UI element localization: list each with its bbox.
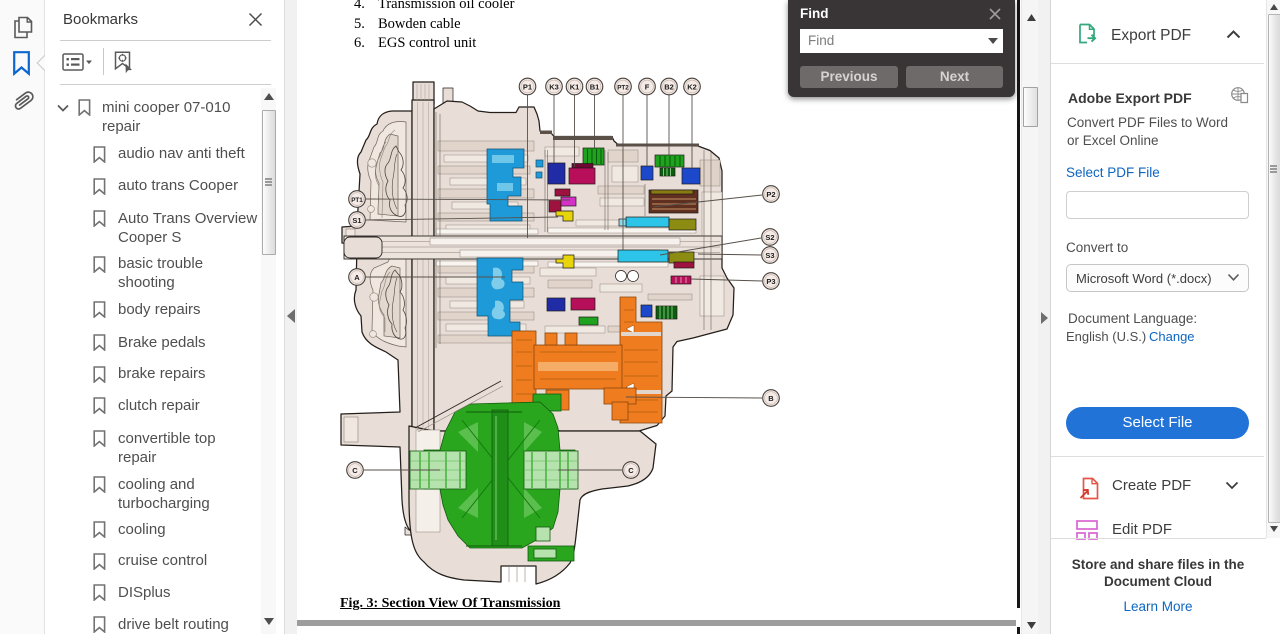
svg-text:C: C [352, 466, 358, 475]
svg-text:P1: P1 [523, 82, 532, 91]
svg-text:B1: B1 [590, 82, 600, 91]
svg-text:S1: S1 [352, 216, 361, 225]
svg-text:P3: P3 [766, 277, 775, 286]
svg-text:A: A [354, 273, 360, 282]
svg-text:K2: K2 [687, 82, 697, 91]
svg-text:P2: P2 [766, 190, 775, 199]
svg-text:PT1: PT1 [351, 197, 363, 204]
svg-text:S2: S2 [765, 233, 774, 242]
svg-text:S3: S3 [765, 251, 774, 260]
svg-text:F: F [645, 82, 650, 91]
svg-text:B2: B2 [664, 82, 674, 91]
svg-text:PT2: PT2 [617, 84, 629, 91]
svg-text:B: B [768, 394, 774, 403]
svg-text:C: C [628, 466, 634, 475]
svg-text:K1: K1 [570, 82, 580, 91]
svg-text:K3: K3 [549, 82, 559, 91]
